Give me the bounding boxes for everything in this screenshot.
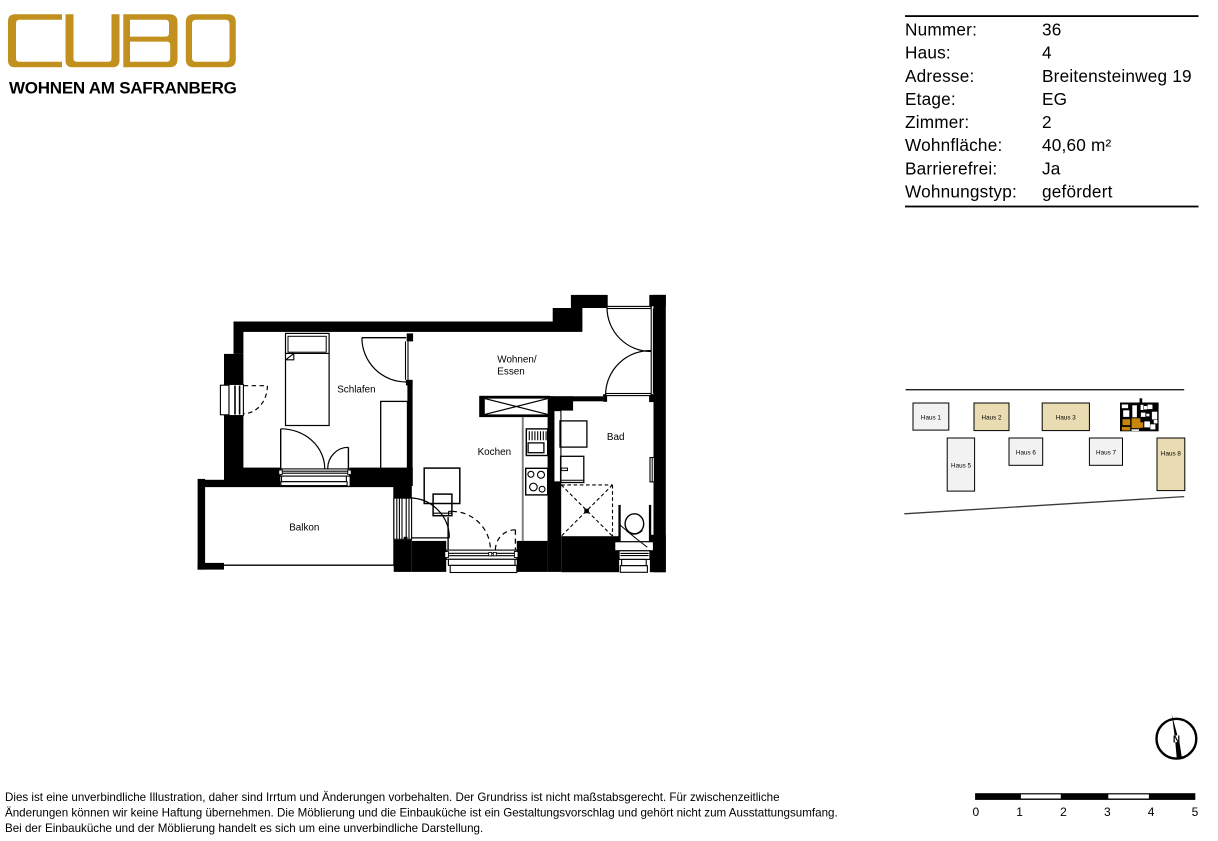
svg-text:Änderungen können wir keine Ha: Änderungen können wir keine Haftung über… — [5, 807, 838, 820]
svg-text:Essen: Essen — [497, 367, 524, 378]
svg-text:5: 5 — [1192, 805, 1199, 819]
svg-text:0: 0 — [972, 805, 979, 819]
svg-text:EG: EG — [1042, 89, 1067, 109]
svg-text:Adresse:: Adresse: — [905, 66, 974, 86]
svg-text:Haus 1: Haus 1 — [921, 414, 941, 421]
svg-text:Haus 5: Haus 5 — [951, 463, 971, 470]
svg-text:40,60 m²: 40,60 m² — [1042, 135, 1112, 155]
svg-text:Wohnfläche:: Wohnfläche: — [905, 135, 1002, 155]
svg-text:Haus 6: Haus 6 — [1016, 450, 1036, 457]
svg-text:Wohnungstyp:: Wohnungstyp: — [905, 181, 1017, 201]
svg-text:Zimmer:: Zimmer: — [905, 112, 969, 132]
svg-text:Kochen: Kochen — [478, 447, 512, 458]
svg-text:N: N — [1173, 734, 1180, 745]
svg-text:1: 1 — [1016, 805, 1023, 819]
svg-text:Haus 2: Haus 2 — [982, 414, 1002, 421]
svg-text:Schlafen: Schlafen — [337, 385, 375, 396]
svg-text:Nummer:: Nummer: — [905, 20, 977, 40]
svg-text:Etage:: Etage: — [905, 89, 956, 109]
svg-text:Bad: Bad — [607, 432, 625, 443]
svg-text:Barrierefrei:: Barrierefrei: — [905, 158, 997, 178]
svg-text:Wohnen/: Wohnen/ — [497, 354, 537, 365]
svg-text:Haus 3: Haus 3 — [1056, 414, 1076, 421]
svg-text:Balkon: Balkon — [289, 523, 319, 534]
svg-text:2: 2 — [1060, 805, 1067, 819]
svg-text:36: 36 — [1042, 20, 1062, 40]
svg-text:Ja: Ja — [1042, 158, 1061, 178]
svg-text:gefördert: gefördert — [1042, 181, 1113, 201]
svg-text:Haus 7: Haus 7 — [1096, 450, 1116, 457]
svg-text:4: 4 — [1042, 43, 1052, 63]
svg-text:Bei der Einbauküche und der Mö: Bei der Einbauküche und der Möblierung h… — [5, 822, 483, 835]
svg-text:3: 3 — [1104, 805, 1111, 819]
svg-text:Breitensteinweg 19: Breitensteinweg 19 — [1042, 66, 1192, 86]
svg-text:Haus:: Haus: — [905, 43, 951, 63]
svg-text:Dies ist eine unverbindliche I: Dies ist eine unverbindliche Illustratio… — [5, 791, 780, 804]
svg-text:2: 2 — [1042, 112, 1052, 132]
svg-text:4: 4 — [1148, 805, 1155, 819]
svg-text:Haus 8: Haus 8 — [1161, 451, 1181, 458]
svg-text:WOHNEN AM SAFRANBERG: WOHNEN AM SAFRANBERG — [9, 79, 237, 98]
